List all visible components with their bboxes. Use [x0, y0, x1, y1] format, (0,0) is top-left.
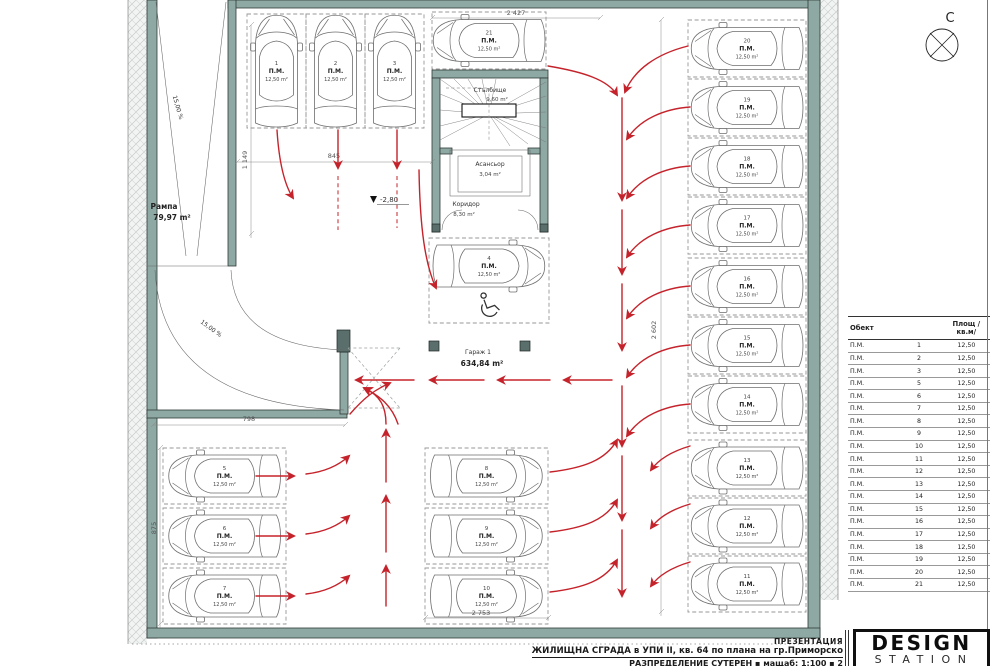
table-row: П.М.1312,50	[848, 478, 990, 491]
spot-area-label: 12,50 m²	[736, 590, 759, 596]
table-row: П.М.1612,50	[848, 516, 990, 529]
wheelchair-icon	[476, 290, 500, 319]
spot-area-label: 12,50 m²	[736, 114, 759, 120]
spot-number: 19	[744, 98, 751, 104]
spot-pm-label: П.М.	[739, 523, 755, 530]
dim-top: 2 427	[507, 9, 526, 17]
table-row: П.М.1412,50	[848, 490, 990, 503]
ramp-slope-upper: 15,00 %	[171, 95, 185, 121]
spot-area-label: 12,50 m²	[736, 352, 759, 358]
spot-number: 15	[744, 336, 751, 342]
parking-spot-12: 12П.М.12,50 m²	[688, 498, 806, 554]
parking-spot-18: 18П.М.12,50 m²	[688, 138, 806, 195]
garage-area: 634,84 m²	[461, 359, 504, 368]
north-label: С	[945, 11, 954, 26]
spot-number: 5	[223, 466, 227, 472]
spot-number: 20	[744, 39, 751, 45]
ramp-slope-lower: 15,00 %	[199, 319, 223, 339]
spot-pm-label: П.М.	[217, 473, 233, 480]
spot-area-label: 12,50 m²	[213, 602, 236, 608]
spot-pm-label: П.М.	[479, 533, 495, 540]
spot-number: 14	[744, 395, 751, 401]
table-row: П.М.312,50	[848, 365, 990, 378]
title-block: ПРЕЗЕНТАЦИЯ ЖИЛИЩНА СГРАДА в УПИ II, кв.…	[532, 637, 843, 666]
parking-spot-11: 11П.М.12,50 m²	[688, 556, 806, 612]
table-row: П.М.2012,50	[848, 566, 990, 579]
spot-area-label: 12,50 m²	[736, 232, 759, 238]
parking-spot-15: 15П.М.12,50 m²	[688, 317, 806, 374]
spot-area-label: 12,50 m²	[736, 55, 759, 61]
parking-spot-14: 14П.М.12,50 m²	[688, 376, 806, 433]
spot-area-label: 12,50 m²	[736, 173, 759, 179]
floor-plan-sheet: 1П.М.12,50 m²2П.М.12,50 m²3П.М.12,50 m²4…	[0, 0, 1000, 666]
table-row: П.М.612,50	[848, 390, 990, 403]
spot-number: 7	[223, 586, 227, 592]
spot-pm-label: П.М.	[387, 68, 403, 75]
dim-right-column: 2 602	[650, 321, 658, 340]
parking-spot-2: 2П.М.12,50 m²	[306, 14, 365, 128]
ramp-label: Рампа	[151, 202, 178, 211]
spot-number: 9	[485, 526, 489, 532]
table-row: П.М.1712,50	[848, 528, 990, 541]
spot-area-label: 12,50 m²	[213, 482, 236, 488]
sheet-frame-line	[987, 0, 988, 666]
table-row: П.М.512,50	[848, 377, 990, 390]
title-separator	[845, 630, 849, 666]
corridor-area: 8,30 m²	[453, 211, 475, 218]
level-marker: -2,80	[370, 196, 409, 205]
spot-number: 8	[485, 466, 489, 472]
spot-pm-label: П.М.	[328, 68, 344, 75]
parking-spot-17: 17П.М.12,50 m²	[688, 197, 806, 254]
spot-area-label: 12,50 m²	[736, 411, 759, 417]
spot-pm-label: П.М.	[479, 473, 495, 480]
spot-area-label: 12,50 m²	[736, 474, 759, 480]
spot-number: 17	[744, 216, 751, 222]
parking-spot-1: 1П.М.12,50 m²	[247, 14, 306, 128]
parking-spot-9: 9П.М.12,50 m²	[425, 508, 548, 564]
spot-area-label: 12,50 m²	[475, 482, 498, 488]
table-row: П.М.1812,50	[848, 541, 990, 554]
spot-number: 10	[483, 586, 490, 592]
spot-pm-label: П.М.	[217, 533, 233, 540]
table-row: П.М.1012,50	[848, 440, 990, 453]
spot-number: 18	[744, 157, 751, 163]
room-labels: Рампа 79,97 m² 15,00 % 15,00 % Гараж 1 6…	[151, 87, 508, 368]
garage-door-swing	[348, 348, 400, 408]
table-row: П.М.1212,50	[848, 465, 990, 478]
table-row: П.М.112,50	[848, 340, 990, 353]
level-value: -2,80	[380, 196, 398, 204]
spot-number: 21	[486, 31, 493, 37]
elevator-area: 3,04 m²	[479, 171, 501, 178]
design-station-logo: DESIGN STATION	[853, 629, 990, 666]
spot-area-label: 12,50 m²	[478, 272, 501, 278]
title-sheet: РАЗПРЕДЕЛЕНИЕ СУТЕРЕН ▪ мащаб: 1:100 ▪ 2	[532, 659, 843, 666]
spot-pm-label: П.М.	[739, 46, 755, 53]
spot-number: 1	[275, 61, 279, 67]
dim-left-upper: 1 149	[241, 151, 249, 170]
parking-spot-8: 8П.М.12,50 m²	[425, 448, 548, 504]
table-header-object: Обект	[848, 317, 943, 340]
parking-spot-16: 16П.М.12,50 m²	[688, 258, 806, 315]
table-row: П.М.1112,50	[848, 453, 990, 466]
parking-spot-3: 3П.М.12,50 m²	[365, 14, 424, 128]
title-presentation: ПРЕЗЕНТАЦИЯ	[532, 637, 843, 646]
dim-ramp-bottom: 798	[243, 415, 255, 423]
table-row: П.М.1512,50	[848, 503, 990, 516]
spot-pm-label: П.М.	[739, 581, 755, 588]
logo-station: STATION	[856, 653, 987, 666]
spot-area-label: 12,50 m²	[736, 532, 759, 538]
corridor-label: Коридор	[452, 201, 479, 208]
area-schedule-table: Обект Площ /кв.м/ П.М.112,50П.М.212,50П.…	[848, 316, 990, 592]
parking-spot-4: 4П.М.12,50 m²	[429, 238, 549, 323]
spot-pm-label: П.М.	[739, 284, 755, 291]
spot-area-label: 12,50 m²	[736, 293, 759, 299]
spot-area-label: 12,50 m²	[475, 602, 498, 608]
spot-area-label: 12,50 m²	[475, 542, 498, 548]
spot-number: 12	[744, 516, 751, 522]
spot-pm-label: П.М.	[217, 593, 233, 600]
title-project: ЖИЛИЩНА СГРАДА в УПИ II, кв. 64 по плана…	[532, 646, 843, 658]
spot-area-label: 12,50 m²	[383, 77, 406, 83]
dim-left-lower: 875	[150, 522, 158, 534]
table-header-area: Площ /кв.м/	[943, 317, 990, 340]
spot-area-label: 12,50 m²	[213, 542, 236, 548]
spot-area-label: 12,50 m²	[265, 77, 288, 83]
spot-pm-label: П.М.	[739, 164, 755, 171]
parking-spot-13: 13П.М.12,50 m²	[688, 440, 806, 496]
garage-label: Гараж 1	[465, 349, 491, 356]
spot-pm-label: П.М.	[481, 263, 497, 270]
north-symbol: С	[926, 11, 958, 61]
spot-pm-label: П.М.	[739, 402, 755, 409]
table-row: П.М.212,50	[848, 352, 990, 365]
spot-number: 2	[334, 61, 338, 67]
spot-pm-label: П.М.	[481, 38, 497, 45]
spot-pm-label: П.М.	[479, 593, 495, 600]
parking-spot-19: 19П.М.12,50 m²	[688, 79, 806, 136]
spot-area-label: 12,50 m²	[478, 47, 501, 53]
elevator-label: Асансьор	[475, 161, 505, 168]
spot-pm-label: П.М.	[739, 105, 755, 112]
table-row: П.М.1912,50	[848, 553, 990, 566]
logo-design: DESIGN	[856, 633, 987, 653]
table-row: П.М.812,50	[848, 415, 990, 428]
table-row: П.М.712,50	[848, 402, 990, 415]
parking-spot-21: 21П.М.12,50 m²	[432, 12, 546, 69]
spot-number: 4	[487, 256, 491, 262]
spot-pm-label: П.М.	[739, 465, 755, 472]
parking-spot-20: 20П.М.12,50 m²	[688, 20, 806, 77]
spot-number: 6	[223, 526, 227, 532]
stairs-area: 9,60 m²	[486, 96, 508, 103]
spot-number: 13	[744, 458, 751, 464]
spot-pm-label: П.М.	[269, 68, 285, 75]
dim-bottom-center: 2 753	[472, 609, 491, 617]
spot-pm-label: П.М.	[739, 223, 755, 230]
spot-pm-label: П.М.	[739, 343, 755, 350]
spot-number: 3	[393, 61, 397, 67]
spot-number: 11	[744, 574, 751, 580]
spot-area-label: 12,50 m²	[324, 77, 347, 83]
table-row: П.М.2112,50	[848, 578, 990, 591]
stairs-label: Стълбище	[474, 87, 507, 94]
ramp-area: 79,97 m²	[153, 213, 190, 222]
table-row: П.М.912,50	[848, 428, 990, 441]
spot-number: 16	[744, 277, 751, 283]
